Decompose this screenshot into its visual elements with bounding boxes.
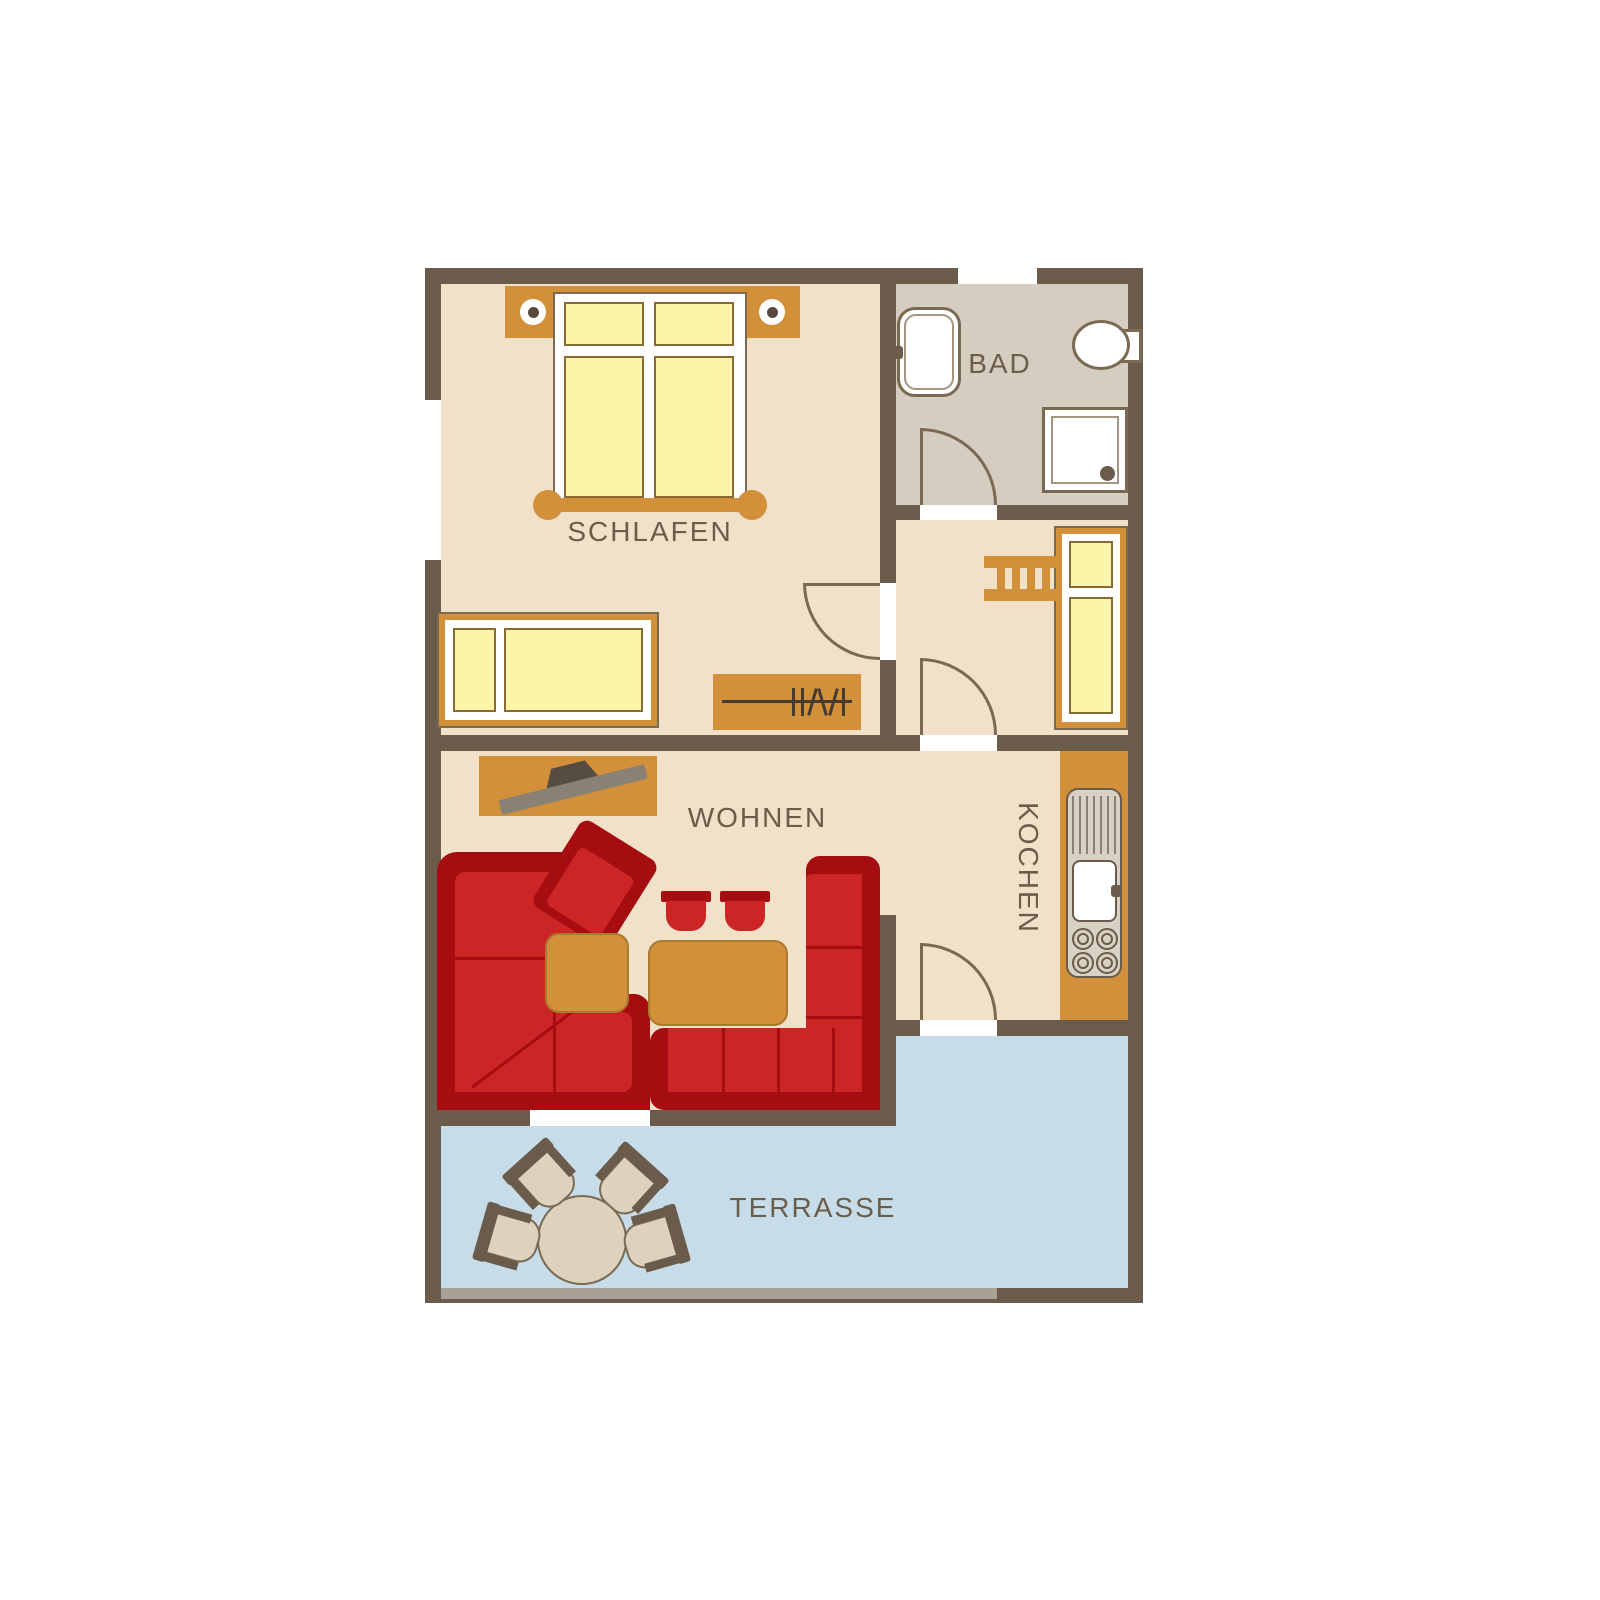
bathtub-tap-icon — [890, 346, 903, 359]
door-opening-terrace — [920, 1020, 997, 1036]
bench-seam — [806, 946, 862, 949]
wall-corridor-terrace — [880, 1020, 1128, 1036]
bench-seam — [832, 1028, 835, 1092]
door-opening-bedroom — [880, 583, 896, 660]
stove-burner-icon — [1096, 928, 1118, 950]
outer-wall-right — [1128, 268, 1143, 1303]
ladder-rung — [1012, 568, 1020, 589]
sink-tap-icon — [1111, 885, 1122, 897]
coffee-table — [545, 933, 629, 1013]
dining-chair — [664, 891, 708, 931]
wall-living-terrace — [425, 1110, 896, 1126]
footboard-bar — [542, 498, 758, 512]
ladder-rung — [1042, 568, 1050, 589]
hanger-icon — [792, 688, 795, 716]
room-label-bad: BAD — [940, 350, 1060, 378]
pillow — [1069, 541, 1113, 588]
hanger-icon — [842, 688, 845, 716]
shower-drain-icon — [1100, 466, 1115, 481]
bed-lamp-icon — [759, 299, 785, 325]
stove-burner-icon — [1072, 952, 1094, 974]
pillow — [453, 628, 496, 712]
drainer-icon — [1072, 796, 1117, 854]
dining-table — [648, 940, 788, 1026]
footboard-knob — [533, 490, 563, 520]
floor-plan-page: SCHLAFEN BAD WOHNEN — [0, 0, 1600, 1600]
pillow — [564, 302, 644, 346]
sofa-seam — [553, 1012, 556, 1092]
bench-seam — [777, 1028, 780, 1092]
window-bedroom — [425, 400, 441, 560]
hanger-icon — [801, 688, 804, 716]
room-label-terrasse: TERRASSE — [698, 1194, 928, 1222]
toilet-icon — [1072, 320, 1130, 370]
footboard-knob — [737, 490, 767, 520]
bed-lamp-icon — [520, 299, 546, 325]
bench-seam — [722, 1028, 725, 1092]
door-opening-living-terrace — [530, 1110, 650, 1126]
bench-seam — [806, 1016, 862, 1019]
ladder-rung — [1027, 568, 1035, 589]
door-opening-bathroom — [920, 505, 997, 520]
terrace-edge-step — [441, 1288, 997, 1299]
stove-burner-icon — [1096, 952, 1118, 974]
room-label-schlafen: SCHLAFEN — [535, 518, 765, 546]
duvet — [654, 356, 734, 498]
room-label-wohnen: WOHNEN — [640, 804, 875, 832]
window-bathroom — [958, 268, 1037, 284]
room-label-kochen: KOCHEN — [1014, 798, 1042, 938]
door-opening-hall-living — [920, 735, 997, 751]
ladder-rung — [997, 568, 1005, 589]
duvet — [504, 628, 643, 712]
stove-burner-icon — [1072, 928, 1094, 950]
ladder-rail — [984, 589, 1056, 601]
duvet — [1069, 597, 1113, 714]
wall-bedroom-living — [425, 735, 1128, 751]
ladder-rail — [984, 556, 1056, 568]
dining-chair — [723, 891, 767, 931]
duvet — [564, 356, 644, 498]
pillow — [654, 302, 734, 346]
